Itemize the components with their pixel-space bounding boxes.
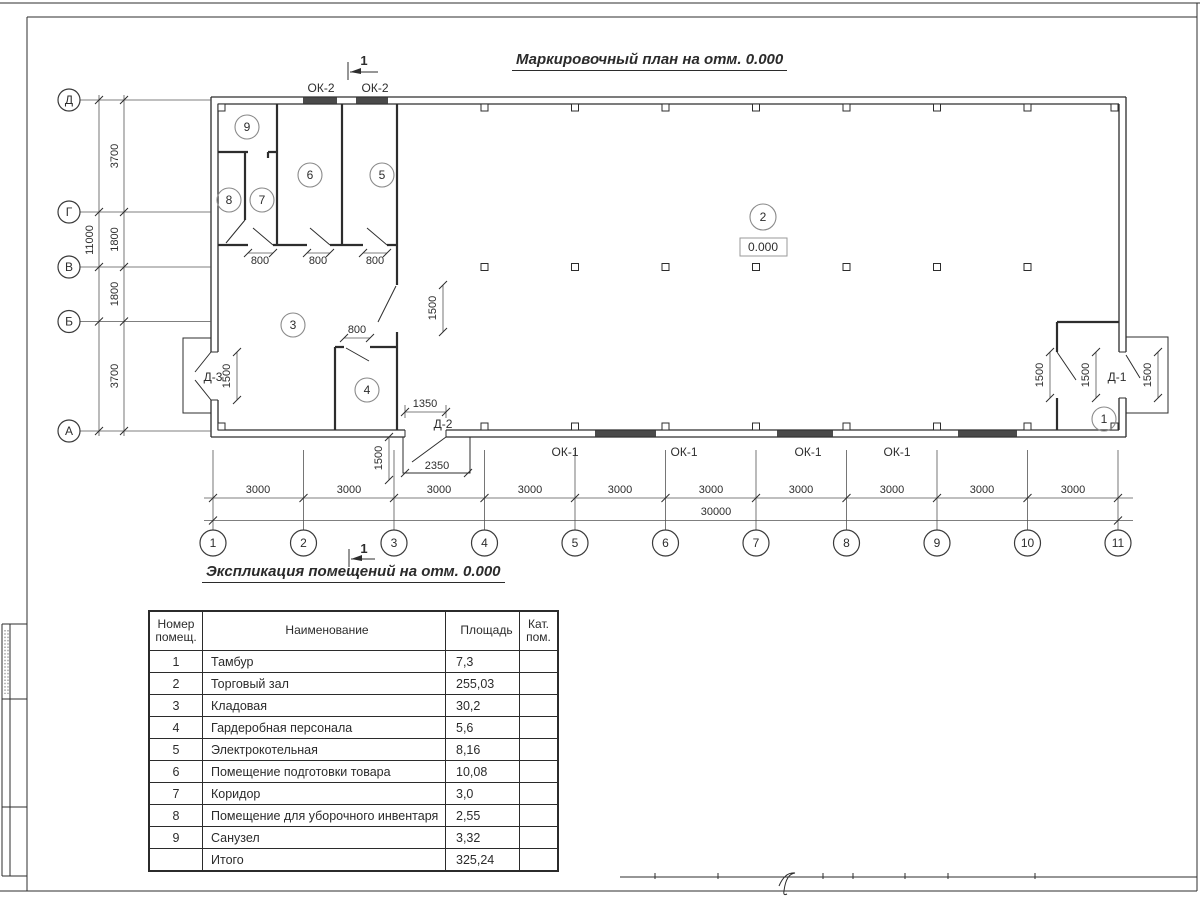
axis-label-g: Г (66, 205, 73, 219)
dim-30000: 30000 (701, 506, 732, 518)
elevation-mark: 0.000 (748, 240, 778, 254)
cell-cat (520, 717, 559, 739)
axis-label-b: Б (65, 315, 73, 329)
cell-name: Кладовая (203, 695, 446, 717)
dim-800: 800 (366, 255, 384, 267)
room-number-4: 4 (364, 383, 371, 397)
room-number-5: 5 (379, 168, 386, 182)
cell-cat (520, 673, 559, 695)
cell-num: 7 (149, 783, 203, 805)
dim-800: 800 (309, 255, 327, 267)
table-row: 9 Санузел 3,32 (149, 827, 558, 849)
row-axes: Д Г В Б А 3700 1800 1800 3700 11000 (58, 89, 211, 442)
cell-area: 5,6 (446, 717, 520, 739)
cell-num: 9 (149, 827, 203, 849)
dim-1500: 1500 (373, 446, 385, 470)
cell-area: 7,3 (446, 651, 520, 673)
cell-num: 3 (149, 695, 203, 717)
room-number-2: 2 (760, 210, 767, 224)
dim-3700-bottom: 3700 (109, 364, 121, 388)
room-schedule-table: Номер помещ. Наименование Площадь Кат. п… (148, 610, 559, 872)
cell-area: 3,0 (446, 783, 520, 805)
axis-label-d: Д (65, 93, 73, 107)
cell-num (149, 849, 203, 872)
dim-3700-top: 3700 (109, 144, 121, 168)
cell-name: Итого (203, 849, 446, 872)
table-row: 5 Электрокотельная 8,16 (149, 739, 558, 761)
axis-label-10: 10 (1021, 536, 1035, 550)
header-name: Наименование (203, 611, 446, 651)
dim-1500: 1500 (221, 364, 233, 388)
dim-800: 800 (348, 324, 366, 336)
room-number-8: 8 (226, 193, 233, 207)
col-axes: 1 2 3 4 5 6 7 8 9 10 11 3000 3000 3000 3… (200, 450, 1133, 556)
axis-label-1: 1 (210, 536, 217, 550)
columns (218, 104, 1118, 430)
dim-11000: 11000 (84, 225, 96, 255)
table-row: 8 Помещение для уборочного инвентаря 2,5… (149, 805, 558, 827)
cell-cat (520, 849, 559, 872)
dim-1500: 1500 (427, 296, 439, 320)
axis-label-a: А (65, 424, 73, 438)
axis-label-9: 9 (934, 536, 941, 550)
table-row: 6 Помещение подготовки товара 10,08 (149, 761, 558, 783)
axis-label-6: 6 (662, 536, 669, 550)
window-label-ok1: ОК-1 (671, 445, 698, 459)
axis-label-8: 8 (843, 536, 850, 550)
cell-name: Коридор (203, 783, 446, 805)
schedule-header-row: Номер помещ. Наименование Площадь Кат. п… (149, 611, 558, 651)
header-num: Номер помещ. (149, 611, 203, 651)
dim-3000: 3000 (246, 484, 270, 496)
header-area: Площадь (446, 611, 520, 651)
dim-3000: 3000 (518, 484, 542, 496)
window-label-ok1: ОК-1 (795, 445, 822, 459)
axis-label-3: 3 (391, 536, 398, 550)
cell-area: 325,24 (446, 849, 520, 872)
table-row: 4 Гардеробная персонала 5,6 (149, 717, 558, 739)
cell-name: Гардеробная персонала (203, 717, 446, 739)
table-row: 7 Коридор 3,0 (149, 783, 558, 805)
axis-label-2: 2 (300, 536, 307, 550)
dim-3000: 3000 (1061, 484, 1085, 496)
room-number-3: 3 (290, 318, 297, 332)
room-number-6: 6 (307, 168, 314, 182)
door-label-d3: Д-3 (204, 370, 223, 384)
cell-area: 3,32 (446, 827, 520, 849)
cell-area: 255,03 (446, 673, 520, 695)
table-row-total: Итого 325,24 (149, 849, 558, 872)
table-row: 2 Торговый зал 255,03 (149, 673, 558, 695)
table-row: 1 Тамбур 7,3 (149, 651, 558, 673)
axis-label-7: 7 (753, 536, 760, 550)
schedule-title: Экспликация помещений на отм. 0.000 (202, 563, 505, 583)
axis-label-4: 4 (481, 536, 488, 550)
room-markers: 9 6 5 8 7 3 4 2 1 0.000 (217, 115, 1116, 431)
door-label-d2: Д-2 (434, 417, 453, 431)
table-row: 3 Кладовая 30,2 (149, 695, 558, 717)
cell-cat (520, 827, 559, 849)
window-label-ok1: ОК-1 (552, 445, 579, 459)
door-label-d1: Д-1 (1108, 370, 1127, 384)
axis-label-v: В (65, 260, 73, 274)
cell-cat (520, 761, 559, 783)
room-number-1: 1 (1101, 412, 1108, 426)
window-label-ok1: ОК-1 (884, 445, 911, 459)
dim-2350: 2350 (425, 460, 449, 472)
cell-num: 2 (149, 673, 203, 695)
cell-num: 1 (149, 651, 203, 673)
section-mark-label: 1 (360, 541, 367, 556)
dim-3000: 3000 (699, 484, 723, 496)
dim-3000: 3000 (970, 484, 994, 496)
axis-label-11: 11 (1112, 536, 1125, 550)
section-mark-label: 1 (360, 53, 367, 68)
dim-1500: 1500 (1034, 363, 1046, 387)
axis-label-5: 5 (572, 536, 579, 550)
dim-1500: 1500 (1080, 363, 1092, 387)
left-stamp (2, 624, 27, 876)
cell-area: 2,55 (446, 805, 520, 827)
dim-3000: 3000 (880, 484, 904, 496)
cell-name: Электрокотельная (203, 739, 446, 761)
dim-800: 800 (251, 255, 269, 267)
cell-area: 8,16 (446, 739, 520, 761)
dim-3000: 3000 (427, 484, 451, 496)
cell-name: Санузел (203, 827, 446, 849)
cell-num: 5 (149, 739, 203, 761)
cell-area: 30,2 (446, 695, 520, 717)
cell-num: 8 (149, 805, 203, 827)
cell-area: 10,08 (446, 761, 520, 783)
cell-name: Помещение подготовки товара (203, 761, 446, 783)
dim-1350: 1350 (413, 398, 437, 410)
drawing-sheet: Д Г В Б А 3700 1800 1800 3700 11000 1 2 … (0, 0, 1200, 900)
cell-cat (520, 783, 559, 805)
cell-cat (520, 805, 559, 827)
cell-name: Тамбур (203, 651, 446, 673)
dim-1800-a: 1800 (109, 227, 121, 251)
room-number-9: 9 (244, 120, 251, 134)
cell-name: Торговый зал (203, 673, 446, 695)
header-cat: Кат. пом. (520, 611, 559, 651)
dim-3000: 3000 (608, 484, 632, 496)
room-number-7: 7 (259, 193, 266, 207)
dim-1500: 1500 (1142, 363, 1154, 387)
window-label-ok2: ОК-2 (362, 81, 389, 95)
cell-num: 6 (149, 761, 203, 783)
window-fills (303, 98, 1017, 437)
cell-name: Помещение для уборочного инвентаря (203, 805, 446, 827)
dim-3000: 3000 (337, 484, 361, 496)
cell-cat (520, 651, 559, 673)
dim-3000: 3000 (789, 484, 813, 496)
plan-title: Маркировочный план на отм. 0.000 (512, 51, 787, 71)
window-label-ok2: ОК-2 (308, 81, 335, 95)
dim-1800-b: 1800 (109, 282, 121, 306)
cell-cat (520, 695, 559, 717)
cell-num: 4 (149, 717, 203, 739)
cell-cat (520, 739, 559, 761)
